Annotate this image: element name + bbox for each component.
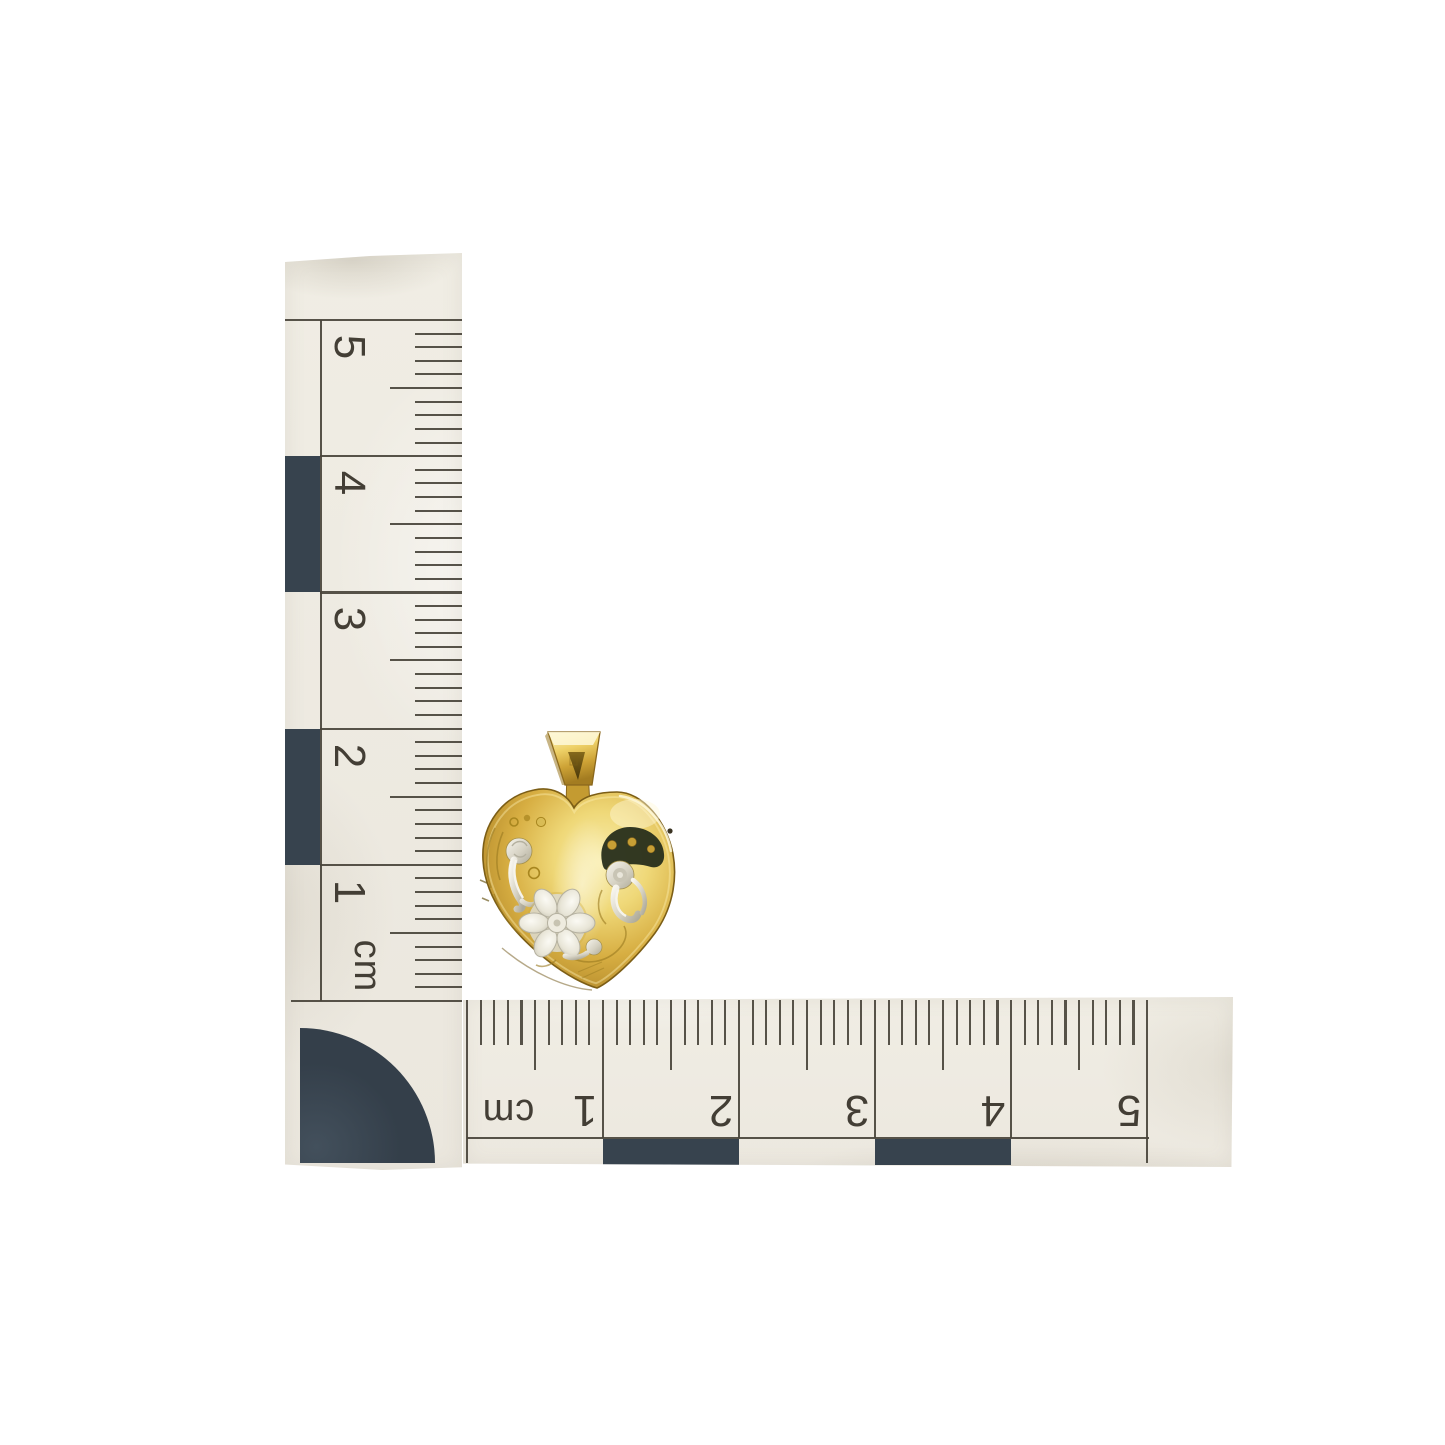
mm-tick	[480, 1000, 482, 1045]
heart-locket-pendant	[470, 710, 690, 1000]
checker-block	[603, 1139, 739, 1165]
mm-tick	[415, 837, 462, 839]
mm-tick	[415, 768, 462, 770]
cm-line	[291, 1000, 462, 1002]
half-cm-tick	[390, 932, 462, 934]
half-cm-tick	[670, 1000, 672, 1070]
mm-tick	[1051, 1000, 1053, 1045]
mm-tick	[415, 809, 462, 811]
mm-tick	[1132, 1000, 1134, 1045]
mm-tick	[415, 428, 462, 430]
mm-tick	[561, 1000, 563, 1045]
ruler-divider-line	[320, 320, 322, 1001]
mm-tick	[588, 1000, 590, 1045]
half-cm-tick	[534, 1000, 536, 1070]
mm-tick	[415, 537, 462, 539]
mm-tick	[415, 373, 462, 375]
cm-line	[874, 1000, 876, 1138]
mm-tick	[415, 946, 462, 948]
mm-tick	[415, 578, 462, 580]
mm-tick	[415, 782, 462, 784]
mm-tick	[656, 1000, 658, 1045]
mm-tick	[888, 1000, 890, 1045]
cm-line	[1146, 1000, 1148, 1163]
mm-tick	[765, 1000, 767, 1045]
mm-tick	[415, 401, 462, 403]
corner-quarter-circle	[300, 1028, 435, 1163]
vertical-ruler-number-5: 5	[326, 324, 372, 370]
mm-tick	[847, 1000, 849, 1045]
mm-tick	[415, 918, 462, 920]
half-cm-tick	[806, 1000, 808, 1070]
mm-tick	[711, 1000, 713, 1045]
cm-line	[1010, 1000, 1012, 1138]
vertical-ruler: 5 4 3 2 1 cm	[285, 253, 462, 1170]
mm-tick	[415, 673, 462, 675]
mm-tick	[415, 877, 462, 879]
mm-tick	[415, 714, 462, 716]
mm-tick	[616, 1000, 618, 1045]
mm-tick	[792, 1000, 794, 1045]
checker-block	[875, 1139, 1011, 1165]
mm-tick	[415, 823, 462, 825]
cm-line	[738, 1000, 740, 1138]
mm-tick	[548, 1000, 550, 1045]
mm-tick	[969, 1000, 971, 1045]
cm-line	[602, 1000, 604, 1138]
mm-tick	[415, 700, 462, 702]
half-cm-tick	[390, 659, 462, 661]
mm-tick	[643, 1000, 645, 1045]
mm-tick	[520, 1000, 522, 1045]
cm-line	[320, 591, 462, 593]
mm-tick	[1092, 1000, 1094, 1045]
horizontal-ruler: cm 1 2 3 4 5	[463, 997, 1233, 1167]
mm-tick	[1037, 1000, 1039, 1045]
mm-tick	[415, 551, 462, 553]
mm-tick	[915, 1000, 917, 1045]
mm-tick	[415, 905, 462, 907]
mm-tick	[415, 605, 462, 607]
mm-tick	[1105, 1000, 1107, 1045]
mm-tick	[996, 1000, 998, 1045]
mm-tick	[415, 959, 462, 961]
checker-block	[285, 729, 320, 865]
mm-tick	[697, 1000, 699, 1045]
vertical-ruler-number-4: 4	[326, 460, 372, 506]
mm-tick	[724, 1000, 726, 1045]
vertical-ruler-number-1: 1	[326, 869, 372, 915]
mm-tick	[415, 469, 462, 471]
mm-tick	[415, 360, 462, 362]
cm-line	[320, 864, 462, 866]
mm-tick	[983, 1000, 985, 1045]
cm-line	[320, 455, 462, 457]
mm-tick	[820, 1000, 822, 1045]
vertical-ruler-number-3: 3	[326, 596, 372, 642]
mm-tick	[507, 1000, 509, 1045]
mm-tick	[415, 496, 462, 498]
half-cm-tick	[390, 796, 462, 798]
mm-tick	[629, 1000, 631, 1045]
mm-tick	[901, 1000, 903, 1045]
half-cm-tick	[942, 1000, 944, 1070]
mm-tick	[928, 1000, 930, 1045]
mm-tick	[956, 1000, 958, 1045]
mm-tick	[752, 1000, 754, 1045]
mm-tick	[415, 346, 462, 348]
mm-tick	[415, 510, 462, 512]
mm-tick	[860, 1000, 862, 1045]
horizontal-ruler-unit-label: cm	[485, 1089, 531, 1135]
half-cm-tick	[390, 387, 462, 389]
mm-tick	[415, 687, 462, 689]
mm-tick	[833, 1000, 835, 1045]
mm-tick	[1024, 1000, 1026, 1045]
mm-tick	[779, 1000, 781, 1045]
mm-tick	[415, 986, 462, 988]
cm-line	[285, 319, 462, 321]
mm-tick	[415, 973, 462, 975]
mm-tick	[415, 564, 462, 566]
ruler-divider-line	[467, 1137, 1149, 1139]
mm-tick	[415, 414, 462, 416]
mm-tick	[415, 482, 462, 484]
half-cm-tick	[1078, 1000, 1080, 1070]
mm-tick	[415, 891, 462, 893]
mm-tick	[415, 333, 462, 335]
clasp-pin	[667, 828, 672, 833]
checker-block	[285, 456, 320, 592]
vertical-ruler-unit-label: cm	[344, 943, 390, 989]
mm-tick	[415, 850, 462, 852]
mm-tick	[1119, 1000, 1121, 1045]
product-photo: 5 4 3 2 1 cm cm 1 2 3 4 5	[0, 0, 1445, 1445]
vertical-ruler-number-2: 2	[326, 733, 372, 779]
mm-tick	[415, 741, 462, 743]
mm-tick	[493, 1000, 495, 1045]
half-cm-tick	[390, 523, 462, 525]
cm-line	[466, 1000, 468, 1163]
mm-tick	[415, 632, 462, 634]
mm-tick	[415, 619, 462, 621]
mm-tick	[415, 646, 462, 648]
mm-tick	[684, 1000, 686, 1045]
mm-tick	[415, 442, 462, 444]
mm-tick	[1064, 1000, 1066, 1045]
cm-line	[320, 728, 462, 730]
mm-tick	[575, 1000, 577, 1045]
mm-tick	[415, 755, 462, 757]
